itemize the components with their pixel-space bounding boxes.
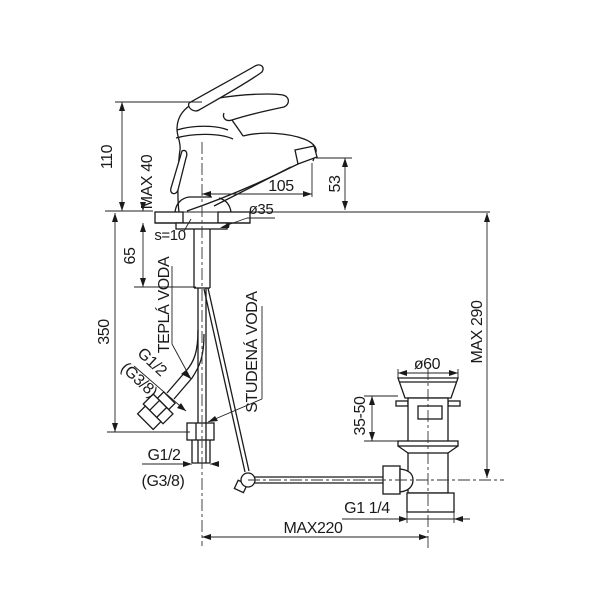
dim-max290-label: MAX 290 [469,300,486,364]
dim-max40-label: MAX 40 [139,154,156,209]
hot-water-label: TEPLÁ VODA [154,256,173,353]
cold-water-label: STUDENÁ VODA [242,291,261,413]
dim-350-label: 350 [96,319,113,345]
hole-diameter-label: ø35 [249,201,274,218]
dim-110-label: 110 [99,144,116,169]
bottom-thread-alt-label: (G3/8) [142,473,185,490]
technical-drawing-page: 110 MAX 40 65 350 s=10 ø35 105 53 TEPLÁ … [0,0,600,600]
drain-thread-label: G1 1/4 [344,500,390,517]
deck-section [155,212,490,229]
shank-nut [187,423,214,440]
aerator [295,146,317,164]
overflow-window [418,406,442,419]
deck-thickness-label: s=10 [154,227,185,244]
dim-65-label: 65 [122,247,139,264]
drain-diameter-label: ø60 [414,356,441,373]
dim-105-label: 105 [268,178,294,195]
waste-tailpiece [407,493,454,512]
dim-max220-label: MAX220 [284,520,343,537]
bottom-thread-label: G1/2 [147,447,181,464]
dim-53-label: 53 [327,175,344,192]
lever-handle-front [219,94,288,121]
faucet-technical-drawing: 110 MAX 40 65 350 s=10 ø35 105 53 TEPLÁ … [0,0,600,600]
faucet-body [171,65,317,212]
popup-linkage [204,288,383,493]
popup-waste [383,378,460,512]
drain-adjust-label: 35-50 [352,396,369,435]
